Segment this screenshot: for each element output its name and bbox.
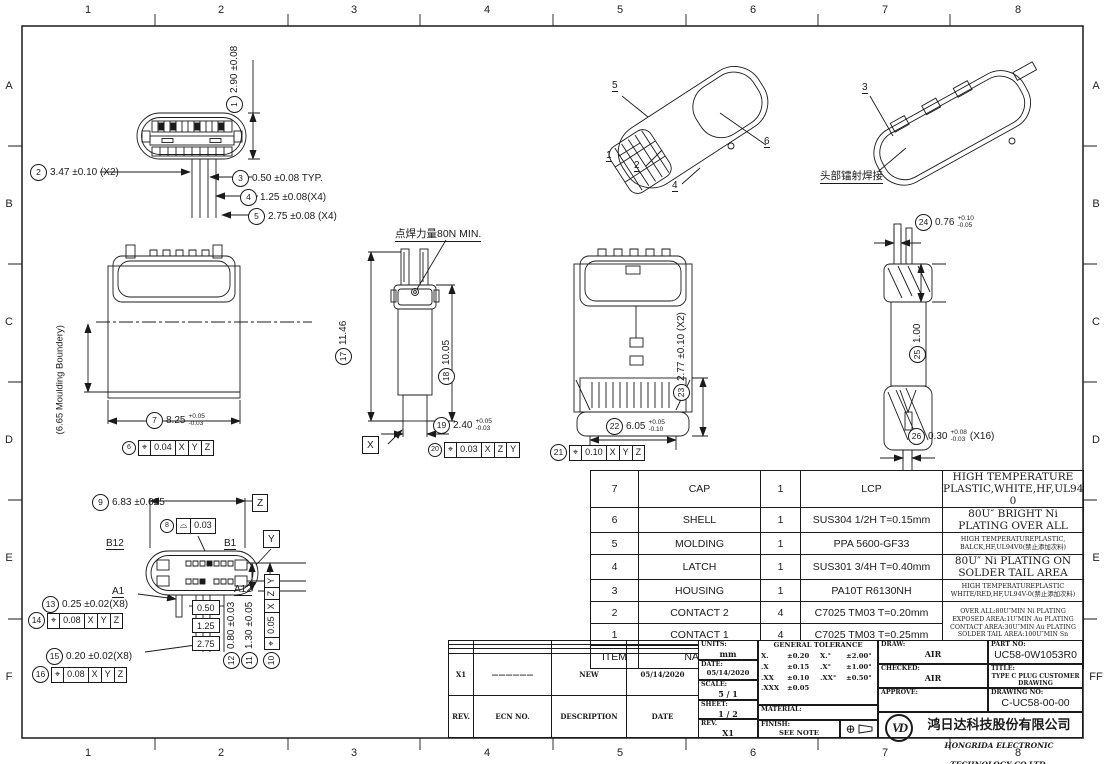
drawing-title: TYPE C PLUG CUSTOMER DRAWING xyxy=(989,674,1082,687)
zone-col: 8 xyxy=(1003,4,1033,16)
projection-cell: ⊕ xyxy=(840,720,878,738)
balloon-26: 26 xyxy=(908,428,925,445)
feature-control-frame: ⌖0.08XYZ xyxy=(52,667,127,683)
rev-value: X1 xyxy=(449,653,474,695)
dim-19: 19 2.40 +0.05-0.03 xyxy=(433,417,492,434)
balloon-14: 14 xyxy=(28,612,45,629)
dim-9: 9 6.83 ±0.025 xyxy=(92,494,165,511)
fcf-8: 8 ⌓0.03 xyxy=(160,518,216,534)
date-header: DATE xyxy=(627,695,699,737)
sheet-value: 1 / 2 xyxy=(699,710,757,719)
table-row: 7 CAP 1 LCP HIGH TEMPERATURE PLASTIC,WHI… xyxy=(591,471,1084,508)
fcf-cell: Y xyxy=(97,613,111,629)
dim-text: 0.30 xyxy=(928,431,947,442)
balloon-15: 15 xyxy=(46,648,63,665)
bom-qty: 1 xyxy=(761,580,801,602)
dim-text: 2.90 ±0.08 xyxy=(229,46,240,93)
feature-control-frame: ⌖0.08XYZ xyxy=(48,613,123,629)
bom-material: SUS301 3/4H T=0.40mm xyxy=(801,555,943,580)
fcf-cell: 0.10 xyxy=(581,445,607,461)
pin-label-b12: B12 xyxy=(106,538,124,550)
dim-24: 24 0.76 +0.10-0.05 xyxy=(915,214,974,231)
fcf-cell: ⌖ xyxy=(264,637,280,650)
finish-value: SEE NOTE xyxy=(759,730,839,737)
dim-11: 11 1.30 ±0.05 xyxy=(241,602,258,669)
zone-row: F xyxy=(0,671,24,683)
fcf-cell: Y xyxy=(506,442,520,458)
fcf-cell: Z xyxy=(494,442,508,458)
balloon-3: 3 xyxy=(232,170,249,187)
dim-text: 3.47 ±0.10 (X2) xyxy=(50,167,119,178)
fcf-cell: Z xyxy=(264,587,280,601)
bom-name: LATCH xyxy=(639,555,761,580)
zone-row: D xyxy=(1081,434,1105,446)
drawing-no-cell: DRAWING NO: C-UC58-00-00 xyxy=(988,688,1083,712)
zone-col: 6 xyxy=(738,4,768,16)
balloon-10: 10 xyxy=(263,652,280,669)
units-cell: UNITS: mm xyxy=(698,640,758,660)
dim-12: 12 0.80 ±0.03 xyxy=(223,602,240,669)
scale-value: 5 / 1 xyxy=(699,690,757,699)
part-no-cell: PART NO: UC58-0W1053R0 xyxy=(988,640,1083,664)
feature-control-frame: ⌖0.10XYZ xyxy=(570,445,645,461)
balloon-9: 9 xyxy=(92,494,109,511)
basic-dim-125: 1.25 xyxy=(192,618,220,633)
balloon-13: 13 xyxy=(42,596,59,613)
profile-tolerance-frame: ⌓0.03 xyxy=(177,518,216,534)
zone-col: 3 xyxy=(339,4,369,16)
bom-material: PA10T R6130NH xyxy=(801,580,943,602)
zone-col: 4 xyxy=(472,747,502,759)
dim-3: 3 0.50 ±0.08 TYP. xyxy=(232,170,323,187)
rev-cell: REV. X1 xyxy=(698,719,758,738)
bom-item: 5 xyxy=(591,533,639,555)
date-cell: DATE: 05/14/2020 xyxy=(698,660,758,680)
datum-y: Y xyxy=(263,530,280,548)
date-value: 05/14/2020 xyxy=(699,670,757,677)
approve-label: APPROVE: xyxy=(879,689,987,698)
sheet-cell: SHEET: 1 / 2 xyxy=(698,700,758,719)
table-row: 2 CONTACT 2 4 C7025 TM03 T=0.20mm OVER A… xyxy=(591,602,1084,624)
company-name-en: HONGRIDA ELECTRONIC TECHNOLOGY CO,LTD. xyxy=(945,741,1054,764)
fcf-cell: 0.08 xyxy=(59,613,85,629)
dim-text: 8.25 xyxy=(166,415,185,426)
dim-text: 2.75 ±0.08 (X4) xyxy=(268,211,337,222)
rev-value: X1 xyxy=(699,729,757,738)
zone-col: 4 xyxy=(472,4,502,16)
spot-weld-note: 点焊力量80N MIN. xyxy=(395,226,481,242)
view-iso-left xyxy=(602,55,779,202)
fcf-6: 6 ⌖0.04XYZ xyxy=(122,440,214,456)
dim-4: 4 1.25 ±0.08(X4) xyxy=(240,189,326,206)
description-header: DESCRIPTION xyxy=(552,695,627,737)
table-row: 4 LATCH 1 SUS301 3/4H T=0.40mm 80U″ Ni P… xyxy=(591,555,1084,580)
company-cell: VD 鸿日达科技股份有限公司 HONGRIDA ELECTRONIC TECHN… xyxy=(878,712,1083,738)
balloon-7: 7 xyxy=(146,412,163,429)
material-label: MATERIAL: xyxy=(759,706,877,715)
bom-name: HOUSING xyxy=(639,580,761,602)
item-balloon-5: 5 xyxy=(612,80,618,92)
bom-material: C7025 TM03 T=0.20mm xyxy=(801,602,943,624)
bom-item: 7 xyxy=(591,471,639,508)
dim-text: 0.25 ±0.02(X8) xyxy=(62,599,128,610)
fcf-cell: X xyxy=(175,440,189,456)
title-cell: TITLE: TYPE C PLUG CUSTOMER DRAWING xyxy=(988,664,1083,688)
bom-item: 2 xyxy=(591,602,639,624)
balloon-19: 19 xyxy=(433,417,450,434)
checked-cell: CHECKED: AIR xyxy=(878,664,988,688)
view-front-face xyxy=(137,113,246,159)
zone-col: 1 xyxy=(73,747,103,759)
balloon-6: 6 xyxy=(122,441,136,455)
dim-text: 0.80 ±0.03 xyxy=(226,602,237,649)
zone-row: E xyxy=(1081,552,1105,564)
dim-text: 6.83 ±0.025 xyxy=(112,497,165,508)
material-cell: MATERIAL: xyxy=(758,705,878,720)
view-moulded-side xyxy=(84,245,312,424)
balloon-21: 21 xyxy=(550,444,567,461)
zone-row: B xyxy=(1081,198,1105,210)
feature-control-frame: ⌖0.04XYZ xyxy=(139,440,214,456)
fcf-cell: Y xyxy=(619,445,633,461)
date-value: 05/14/2020 xyxy=(627,653,699,695)
bom-qty: 1 xyxy=(761,533,801,555)
zone-row: E xyxy=(0,552,24,564)
item-balloon-6: 6 xyxy=(764,136,770,148)
item-balloon-3: 3 xyxy=(862,82,868,94)
feature-control-frame: ⌖0.05XZY xyxy=(264,574,280,649)
bom-material: LCP xyxy=(801,471,943,508)
bom-name: SHELL xyxy=(639,508,761,533)
dim-text: 0.50 ±0.08 TYP. xyxy=(252,173,323,184)
basic-dim-275: 2.75 xyxy=(192,636,220,651)
balloon-20: 20 xyxy=(428,443,442,457)
dim-5: 5 2.75 ±0.08 (X4) xyxy=(248,208,337,225)
dim-text: (6.65 Moulding Boundery) xyxy=(56,325,66,434)
dim-text: 10.05 xyxy=(441,340,452,365)
tolerance-title: GENERAL TOLERANCE xyxy=(759,641,877,650)
tolerance-stack: +0.08-0.03 xyxy=(950,430,966,444)
bom-item: 3 xyxy=(591,580,639,602)
dim-text: 0.20 ±0.02(X8) xyxy=(66,651,132,662)
bom-name: CONTACT 2 xyxy=(639,602,761,624)
bom-finished: HIGH TEMPERATURE PLASTIC,WHITE,HF,UL94V-… xyxy=(943,471,1084,508)
balloon-25: 25 xyxy=(909,346,926,363)
bom-finished: 80U″ BRIGHT Ni PLATING OVER ALL xyxy=(943,508,1084,533)
dim-2: 2 3.47 ±0.10 (X2) xyxy=(30,164,119,181)
fcf-cell: 0.03 xyxy=(456,442,482,458)
dim-text: 2.77 ±0.10 (X2) xyxy=(676,312,687,381)
bom-material: PPA 5600-GF33 xyxy=(801,533,943,555)
bom-name: MOLDING xyxy=(639,533,761,555)
part-no-value: UC58-0W1053R0 xyxy=(989,650,1082,662)
ecn-header: ECN NO. xyxy=(474,695,552,737)
target-symbol-icon: ⊕ xyxy=(845,722,855,736)
dim-text: 11.46 xyxy=(338,321,349,345)
dim-text: 1.25 ±0.08(X4) xyxy=(260,192,326,203)
fcf-cell: 0.04 xyxy=(150,440,176,456)
datum-z: Z xyxy=(252,494,268,512)
balloon-5: 5 xyxy=(248,208,265,225)
pin-label-a12: A12 xyxy=(234,584,252,596)
zone-row: B xyxy=(0,198,24,210)
fcf-cell: X xyxy=(88,667,102,683)
balloon-17: 17 xyxy=(335,348,352,365)
bom-finished: HIGH TEMPERATUREPLASTIC, BALCK,HF,UL94V0… xyxy=(943,533,1084,555)
dim-text: 2.40 xyxy=(453,420,472,431)
basic-dim-050: 0.50 xyxy=(192,600,220,615)
fcf-cell: Y xyxy=(264,574,280,588)
dim-suffix: (X16) xyxy=(970,431,994,442)
balloon-8: 8 xyxy=(160,519,174,533)
balloon-16: 16 xyxy=(32,666,49,683)
fcf-cell: X xyxy=(84,613,98,629)
moulding-boundary-label: (6.65 Moulding Boundery) xyxy=(56,325,66,434)
fcf-10: 10 ⌖0.05XZY xyxy=(263,574,280,669)
dim-text: 6.05 xyxy=(626,421,645,432)
tolerance-stack: +0.05-0.10 xyxy=(648,420,664,434)
dim-18: 18 10.05 xyxy=(438,340,455,385)
zone-row: FF xyxy=(1081,671,1105,683)
units-value: mm xyxy=(699,650,757,659)
fcf-cell: X xyxy=(264,599,280,613)
fcf-cell: Z xyxy=(110,613,124,629)
fcf-cell: ⌓ xyxy=(176,518,191,534)
bom-material: SUS304 1/2H T=0.15mm xyxy=(801,508,943,533)
balloon-12: 12 xyxy=(223,652,240,669)
tolerance-grid: X.±0.20X.°±2.00° .X±0.15.X°±1.00° .XX±0.… xyxy=(759,650,877,693)
laser-weld-note: 头部镭射焊接 xyxy=(820,168,883,184)
balloon-23: 23 xyxy=(673,384,690,401)
zone-col: 2 xyxy=(206,4,236,16)
balloon-4: 4 xyxy=(240,189,257,206)
bom-item: 6 xyxy=(591,508,639,533)
zone-col: 2 xyxy=(206,747,236,759)
balloon-1: 1 xyxy=(226,96,243,113)
bom-qty: 4 xyxy=(761,602,801,624)
table-row: 6 SHELL 1 SUS304 1/2H T=0.15mm 80U″ BRIG… xyxy=(591,508,1084,533)
dim-26: 26 0.30 +0.08-0.03 (X16) xyxy=(908,428,994,445)
zone-row: C xyxy=(0,316,24,328)
fcf-cell: Z xyxy=(114,667,128,683)
balloon-18: 18 xyxy=(438,368,455,385)
checked-value: AIR xyxy=(879,674,987,683)
zone-row: D xyxy=(0,434,24,446)
dim-text: 0.76 xyxy=(935,217,954,228)
balloon-22: 22 xyxy=(606,418,623,435)
drawing-sheet: 1 2 3 4 5 6 7 8 1 2 3 4 5 6 7 8 A B C D … xyxy=(0,0,1105,764)
bom-item: 4 xyxy=(591,555,639,580)
fcf-20: 20 ⌖0.03XZY xyxy=(428,442,520,458)
datum-x: X xyxy=(362,436,379,454)
fcf-cell: 0.03 xyxy=(190,518,216,534)
bom-qty: 1 xyxy=(761,555,801,580)
revision-header-row: REV. ECN NO. DESCRIPTION DATE xyxy=(449,695,699,737)
dim-23: 23 2.77 ±0.10 (X2) xyxy=(673,312,690,401)
drawing-no-value: C-UC58-00-00 xyxy=(989,698,1082,710)
feature-control-frame: ⌖0.03XZY xyxy=(445,442,520,458)
bom-qty: 1 xyxy=(761,471,801,508)
bom-finished: HIGH TEMPERATUREPLASTIC WHITE/RED,HF,UL9… xyxy=(943,580,1084,602)
dim-text: 1.00 xyxy=(912,324,923,343)
revision-table: X1 —————— NEW 05/14/2020 REV. ECN NO. DE… xyxy=(448,640,699,738)
dim-15: 15 0.20 ±0.02(X8) xyxy=(46,648,132,665)
fcf-cell: Y xyxy=(188,440,202,456)
fcf-21: 21 ⌖0.10XYZ xyxy=(550,444,645,461)
fcf-cell: X xyxy=(481,442,495,458)
approve-cell: APPROVE: xyxy=(878,688,988,712)
fcf-cell: X xyxy=(606,445,620,461)
draw-cell: DRAW: AIR xyxy=(878,640,988,664)
dim-13: 13 0.25 ±0.02(X8) xyxy=(42,596,128,613)
zone-col: 3 xyxy=(339,747,369,759)
fcf-cell: Z xyxy=(632,445,646,461)
item-balloon-4: 4 xyxy=(672,180,678,192)
tolerance-stack: +0.10-0.05 xyxy=(957,216,973,230)
zone-col: 5 xyxy=(605,4,635,16)
company-logo: VD xyxy=(885,714,913,742)
fcf-16: 16 ⌖0.08XYZ xyxy=(32,666,127,683)
description-value: NEW xyxy=(552,653,627,695)
zone-row: C xyxy=(1081,316,1105,328)
fcf-cell: 0.05 xyxy=(264,612,280,638)
bom-name: CAP xyxy=(639,471,761,508)
projection-symbol-icon xyxy=(858,724,873,734)
tolerance-stack: +0.05-0.03 xyxy=(475,419,491,433)
balloon-24: 24 xyxy=(915,214,932,231)
dim-17: 17 11.46 xyxy=(335,321,352,365)
dim-1: 1 2.90 ±0.08 xyxy=(226,46,243,113)
fcf-14: 14 ⌖0.08XYZ xyxy=(28,612,123,629)
dim-22: 22 6.05 +0.05-0.10 xyxy=(606,418,665,435)
bom-finished: 80U″ Ni PLATING ON SOLDER TAIL AREA xyxy=(943,555,1084,580)
item-balloon-1: 1 xyxy=(606,150,612,162)
zone-col: 7 xyxy=(870,747,900,759)
fcf-cell: Y xyxy=(101,667,115,683)
general-tolerance-cell: GENERAL TOLERANCE X.±0.20X.°±2.00° .X±0.… xyxy=(758,640,878,705)
zone-row: A xyxy=(0,80,24,92)
item-balloon-2: 2 xyxy=(634,160,640,172)
draw-value: AIR xyxy=(879,650,987,659)
zone-col: 1 xyxy=(73,4,103,16)
zone-col: 5 xyxy=(605,747,635,759)
zone-col: 6 xyxy=(738,747,768,759)
table-row: 3 HOUSING 1 PA10T R6130NH HIGH TEMPERATU… xyxy=(591,580,1084,602)
pin-label-b1: B1 xyxy=(224,538,236,550)
fcf-cell: 0.08 xyxy=(63,667,89,683)
tolerance-stack: +0.05-0.03 xyxy=(188,414,204,428)
zone-col: 7 xyxy=(870,4,900,16)
view-iso-right xyxy=(862,49,1056,195)
dim-25: 25 1.00 xyxy=(909,324,926,363)
fcf-cell: Z xyxy=(201,440,215,456)
bom-finished-contacts: OVER ALL:80U″MIN Ni PLATING EXPOSED AREA… xyxy=(943,602,1084,646)
dim-7: 7 8.25 +0.05-0.03 xyxy=(146,412,205,429)
table-row: 5 MOLDING 1 PPA 5600-GF33 HIGH TEMPERATU… xyxy=(591,533,1084,555)
scale-cell: SCALE: 5 / 1 xyxy=(698,680,758,700)
balloon-11: 11 xyxy=(241,652,258,669)
balloon-2: 2 xyxy=(30,164,47,181)
revision-entry-row: X1 —————— NEW 05/14/2020 xyxy=(449,653,699,695)
rev-header: REV. xyxy=(449,695,474,737)
zone-row: A xyxy=(1081,80,1105,92)
company-name-cn: 鸿日达科技股份有限公司 xyxy=(927,717,1070,732)
dim-text: 1.30 ±0.05 xyxy=(244,602,255,649)
ecn-value: —————— xyxy=(474,653,552,695)
bom-qty: 1 xyxy=(761,508,801,533)
finish-cell: FINISH: SEE NOTE xyxy=(758,720,840,738)
